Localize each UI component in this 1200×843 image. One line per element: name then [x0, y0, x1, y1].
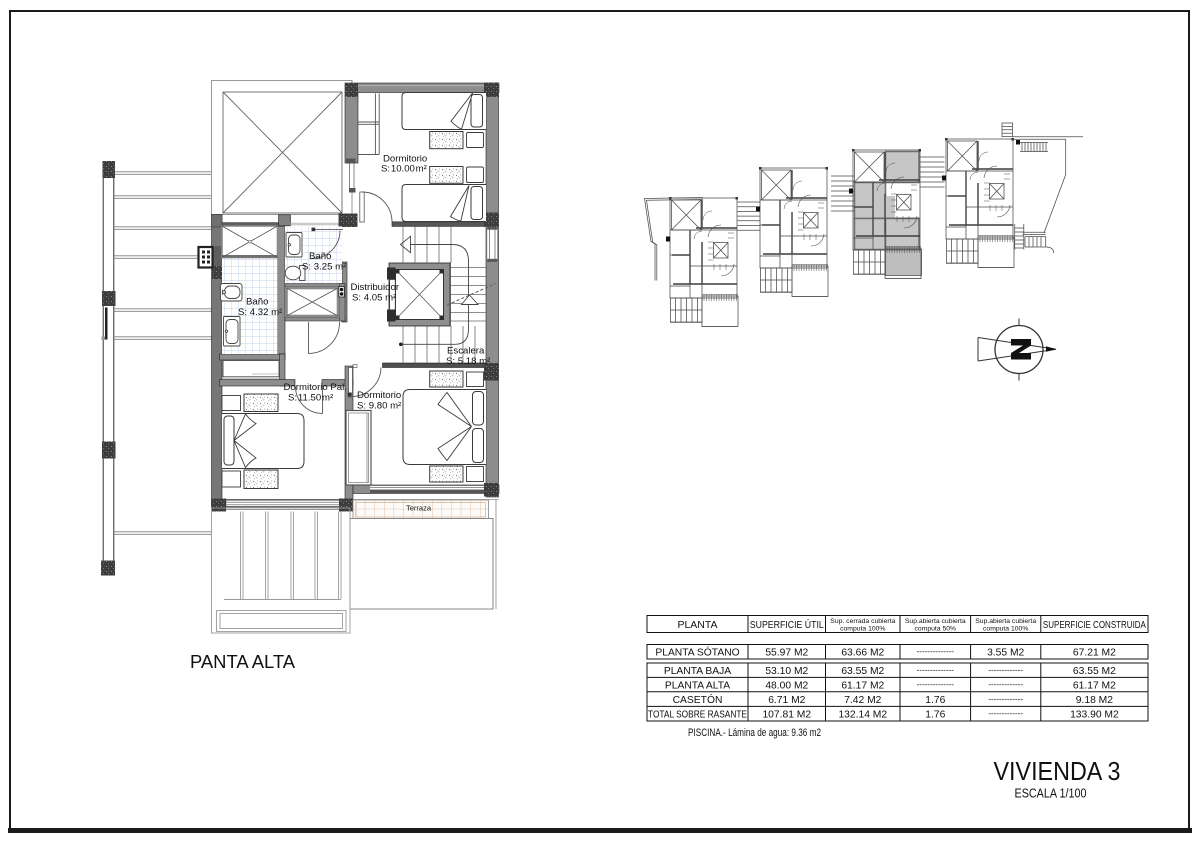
svg-text:VIVIENDA 3: VIVIENDA 3 — [994, 758, 1121, 786]
svg-text:1.76: 1.76 — [925, 709, 945, 720]
svg-text:Baño: Baño — [246, 297, 268, 308]
svg-text:computa 100%: computa 100% — [840, 626, 885, 633]
svg-text:computa 100%: computa 100% — [983, 626, 1028, 633]
svg-text:PLANTA SÓTANO: PLANTA SÓTANO — [655, 646, 739, 659]
svg-text:SUPERFICIE CONSTRUIDA: SUPERFICIE CONSTRUIDA — [1043, 619, 1146, 631]
svg-text:55.97 M2: 55.97 M2 — [765, 648, 808, 659]
svg-text:-------------: ------------- — [988, 695, 1023, 704]
svg-text:3.55 M2: 3.55 M2 — [987, 648, 1024, 659]
svg-text:--------------: -------------- — [917, 680, 955, 689]
svg-text:132.14 M2: 132.14 M2 — [838, 709, 887, 720]
svg-text:Dormitorio: Dormitorio — [357, 390, 401, 401]
svg-text:1.76: 1.76 — [925, 695, 945, 706]
svg-text:Sup.abierta cubierta: Sup.abierta cubierta — [905, 618, 966, 625]
svg-text:PISCINA.- Lámina de agua: 9.36: PISCINA.- Lámina de agua: 9.36 m2 — [688, 727, 821, 739]
svg-text:PLANTA ALTA: PLANTA ALTA — [665, 680, 730, 691]
svg-text:CASETÓN: CASETÓN — [673, 693, 723, 706]
svg-text:-------------: ------------- — [988, 680, 1023, 689]
svg-text:--------------: -------------- — [917, 647, 955, 656]
svg-text:63.55 M2: 63.55 M2 — [1073, 666, 1116, 677]
svg-text:-------------: ------------- — [988, 666, 1023, 675]
svg-text:48.00 M2: 48.00 M2 — [765, 680, 808, 691]
svg-text:S: 3.25 m²: S: 3.25 m² — [302, 262, 347, 273]
svg-text:53.10 M2: 53.10 M2 — [765, 666, 808, 677]
svg-text:-------------: ------------- — [988, 709, 1023, 718]
svg-text:Dormitorio Pal.: Dormitorio Pal. — [284, 382, 347, 393]
svg-text:S: 4.32 m²: S: 4.32 m² — [238, 307, 283, 318]
svg-text:Distribuidor: Distribuidor — [351, 282, 400, 293]
svg-text:107.81 M2: 107.81 M2 — [762, 709, 811, 720]
svg-text:133.90 M2: 133.90 M2 — [1070, 709, 1119, 720]
svg-text:Terraza: Terraza — [406, 504, 432, 513]
svg-text:63.66 M2: 63.66 M2 — [841, 648, 884, 659]
svg-text:7.42 M2: 7.42 M2 — [844, 695, 881, 706]
svg-text:SUPERFICIE ÚTIL: SUPERFICIE ÚTIL — [750, 618, 824, 631]
svg-text:6.71 M2: 6.71 M2 — [768, 695, 805, 706]
svg-text:67.21 M2: 67.21 M2 — [1073, 648, 1116, 659]
svg-text:PLANTA BAJA: PLANTA BAJA — [664, 666, 731, 677]
svg-text:S: 4.05 m²: S: 4.05 m² — [352, 293, 397, 304]
svg-text:Escalera: Escalera — [447, 346, 485, 357]
svg-text:61.17 M2: 61.17 M2 — [1073, 680, 1116, 691]
svg-text:PANTA ALTA: PANTA ALTA — [190, 651, 296, 672]
svg-text:S: 9.80 m²: S: 9.80 m² — [357, 401, 402, 412]
svg-text:computa 50%: computa 50% — [915, 626, 957, 633]
svg-text:S: 10.00 m²: S: 10.00 m² — [381, 164, 428, 175]
svg-text:S: 5.18 m²: S: 5.18 m² — [446, 356, 491, 367]
svg-text:PLANTA: PLANTA — [677, 619, 717, 631]
svg-text:9.18 M2: 9.18 M2 — [1076, 695, 1113, 706]
svg-text:Sup. cerrada cubierta: Sup. cerrada cubierta — [830, 618, 895, 625]
svg-text:63.55 M2: 63.55 M2 — [841, 666, 884, 677]
svg-text:Sup.abierta cubierta: Sup.abierta cubierta — [975, 618, 1036, 625]
svg-text:61.17 M2: 61.17 M2 — [841, 680, 884, 691]
svg-text:S: 11.50 m²: S: 11.50 m² — [288, 393, 334, 404]
svg-text:ESCALA 1/100: ESCALA 1/100 — [1015, 787, 1087, 801]
svg-text:TOTAL SOBRE RASANTE: TOTAL SOBRE RASANTE — [648, 709, 747, 720]
svg-text:Baño: Baño — [309, 251, 331, 262]
svg-text:--------------: -------------- — [917, 666, 955, 675]
